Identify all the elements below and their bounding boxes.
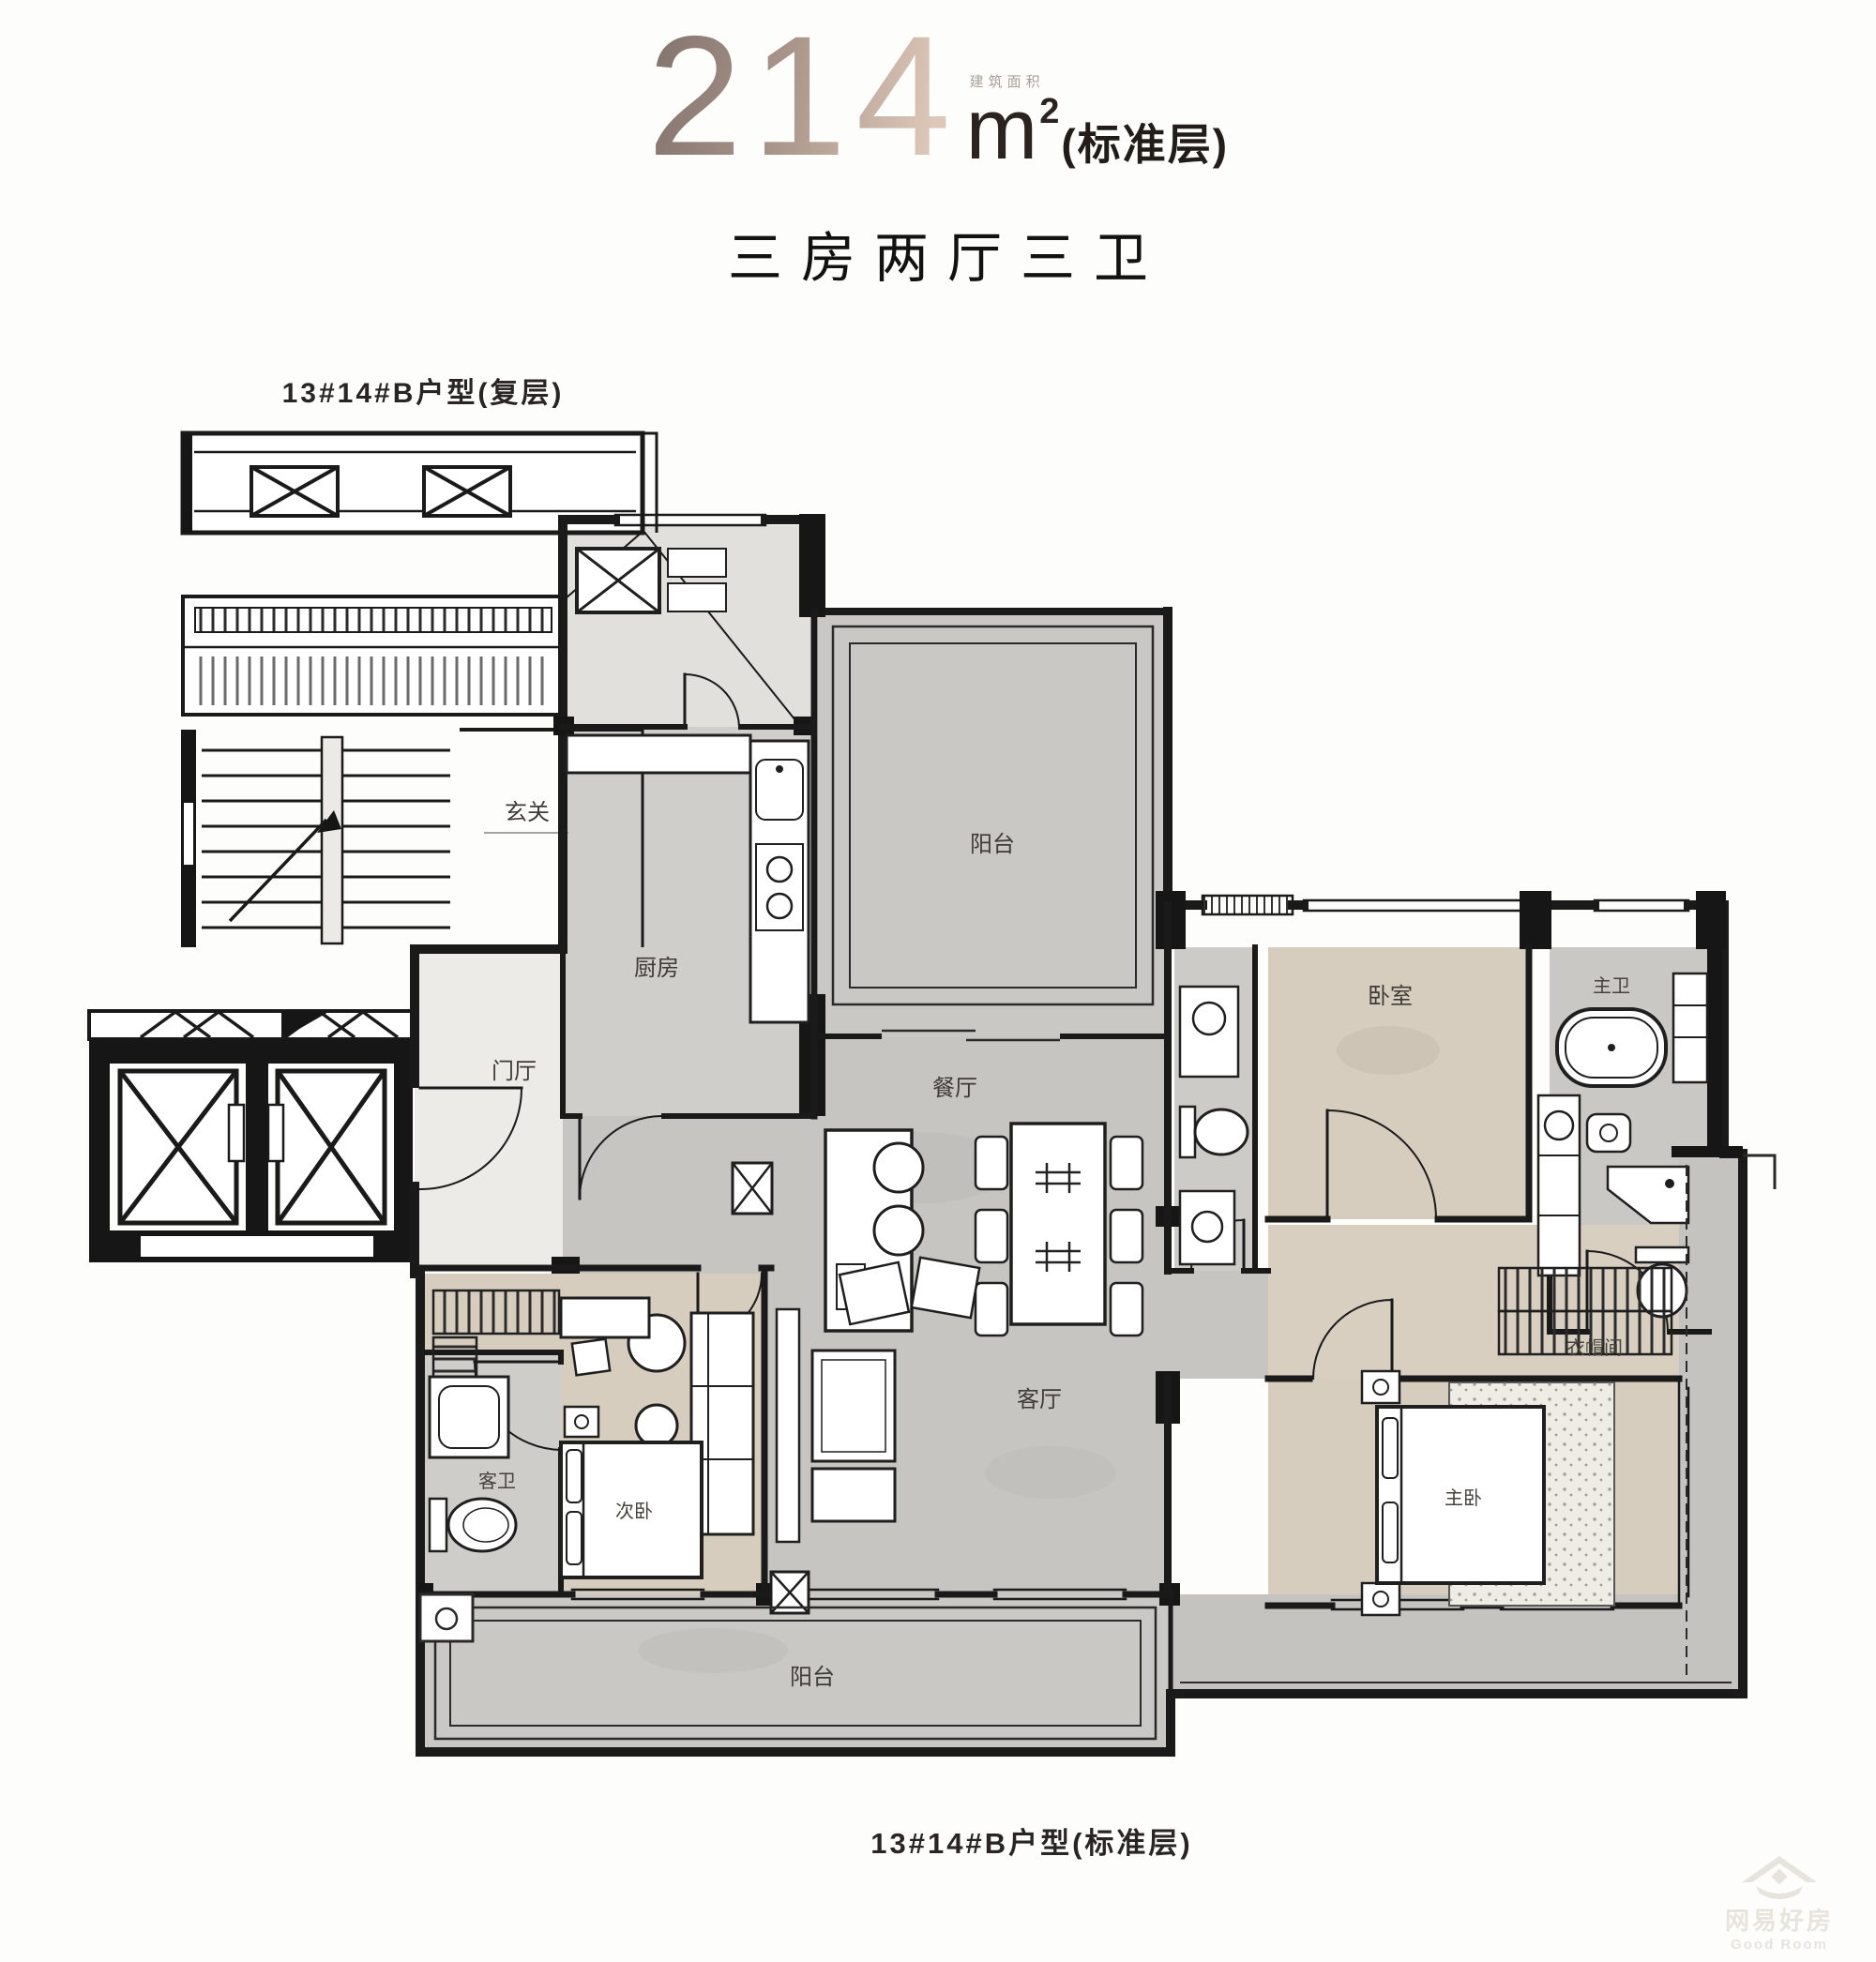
label-hall: 门厅 [492,1059,537,1084]
label-bedroom1: 次卧 [615,1501,653,1522]
label-living: 客厅 [1017,1387,1062,1412]
floorplan-page: 214 建筑面积 m 2 (标准层) 三房两厅三卫 13#14#B户型(复层) … [0,0,1876,1962]
watermark-en: Good Room [1700,1937,1859,1953]
label-kitchen: 厨房 [634,956,679,981]
label-closet: 衣帽间 [1566,1337,1623,1359]
house-roof-icon [1728,1850,1831,1903]
label-balcony-north: 阳台 [970,832,1015,857]
floor-plan: 玄关 门厅 厨房 阳台 餐厅 客厅 卧室 主卫 衣帽间 主卧 次卧 客卫 阳台 [0,0,1876,1962]
label-master-bath: 主卫 [1593,975,1630,997]
label-bath1: 客卫 [478,1471,516,1492]
label-balcony-south: 阳台 [790,1665,835,1690]
label-bedroom2: 卧室 [1368,984,1413,1009]
watermark: 网易好房 Good Room [1700,1850,1859,1953]
label-dining: 餐厅 [932,1076,977,1101]
label-master-bedroom: 主卧 [1445,1487,1482,1509]
elevator-block [89,1011,413,1262]
watermark-cn: 网易好房 [1700,1908,1859,1935]
label-foyer: 玄关 [505,800,550,825]
